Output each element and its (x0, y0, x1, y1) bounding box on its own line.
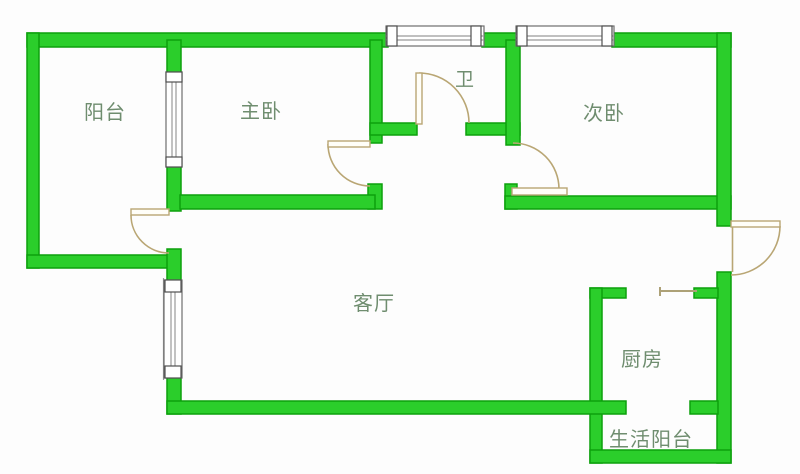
wall-top-right (612, 33, 731, 47)
wall-master-bottom (180, 195, 375, 209)
room-label-utility-balcony: 生活阳台 (609, 429, 693, 449)
door-second-bedroom (512, 143, 567, 195)
door-balcony (131, 209, 169, 253)
room-label-second-bedroom: 次卧 (583, 103, 625, 123)
wall-balcony-divider-top (167, 40, 181, 73)
walls (27, 33, 731, 463)
wall-top-left (27, 33, 388, 47)
door-master-bedroom (328, 141, 370, 186)
wall-balcony-divider-bottom (167, 166, 181, 211)
wall-second-bottom (505, 196, 731, 209)
doors (131, 73, 780, 275)
wall-outer-right-lower (717, 272, 731, 463)
room-label-kitchen: 厨房 (621, 349, 663, 369)
floor-plan: 阳台 主卧 卫 次卧 客厅 厨房 生活阳台 (0, 0, 800, 474)
wall-kitchen-left (590, 288, 602, 463)
window-bathroom-top (386, 26, 484, 46)
wall-bath-second-divider (506, 40, 520, 145)
room-label-master-bedroom: 主卧 (240, 101, 282, 121)
kitchen-counter-line (660, 287, 697, 296)
wall-kitchen-utility-stub (690, 401, 718, 414)
floor-plan-drawing (0, 0, 800, 474)
wall-living-bottom (167, 401, 626, 414)
window-balcony-divider (166, 72, 182, 167)
wall-bathroom-bottom-left (370, 123, 417, 135)
room-label-bathroom: 卫 (455, 71, 475, 90)
room-label-living-room: 客厅 (353, 293, 395, 313)
wall-living-left-upper (167, 249, 181, 282)
wall-balcony-bottom (27, 255, 173, 268)
room-label-balcony: 阳台 (84, 102, 126, 122)
window-living-left (164, 278, 183, 380)
wall-outer-left (27, 33, 39, 268)
wall-kitchen-top-right (694, 288, 718, 298)
wall-outer-right-upper (717, 33, 731, 226)
door-entrance (731, 221, 780, 275)
wall-utility-bottom (590, 450, 731, 463)
window-second-bedroom-top (516, 26, 614, 46)
